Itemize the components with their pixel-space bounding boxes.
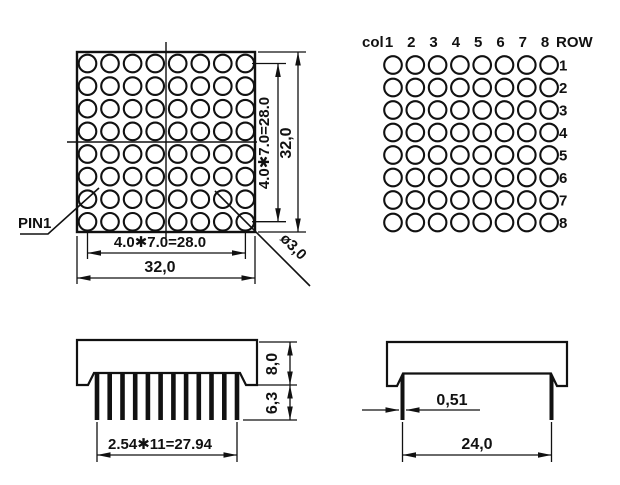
profile-body-outline	[387, 342, 567, 386]
dim-pin-thickness-label: 0,51	[436, 392, 467, 409]
col-number: 3	[429, 34, 437, 51]
led-dot	[384, 79, 402, 97]
led-dot	[237, 145, 255, 163]
col-number: 5	[474, 34, 482, 51]
led-dot	[540, 191, 558, 209]
led-dot	[407, 101, 425, 119]
led-dot	[407, 191, 425, 209]
led-dot	[473, 191, 491, 209]
led-dot	[407, 124, 425, 142]
led-dot	[540, 124, 558, 142]
row-number: 4	[559, 125, 568, 142]
led-dot	[407, 56, 425, 74]
led-dot	[146, 100, 164, 118]
led-dot	[101, 55, 119, 73]
pinout-dot-grid	[384, 56, 558, 231]
dim-pin-row-spacing-label: 24,0	[461, 436, 492, 453]
pin	[171, 373, 176, 420]
led-dot	[192, 145, 210, 163]
led-dot	[496, 146, 514, 164]
side-view-front: 8,0 6,3 2.54✱11=27.94	[77, 340, 297, 462]
led-dot	[540, 169, 558, 187]
led-dot	[496, 56, 514, 74]
drawing-canvas: PIN1 4.0✱7.0=28.0 32,0 4.0✱7.0=28.0 32,0…	[0, 0, 620, 485]
led-dot	[473, 169, 491, 187]
dim-v-overall-label: 32,0	[278, 127, 295, 158]
dim-standoff-label: 6,3	[264, 392, 281, 414]
led-dot	[384, 101, 402, 119]
led-dot	[214, 213, 232, 231]
led-dot	[473, 79, 491, 97]
led-dot	[79, 145, 97, 163]
led-dot	[192, 168, 210, 186]
row-header-label: ROW	[556, 34, 594, 51]
led-dot	[169, 213, 187, 231]
led-dot	[518, 79, 536, 97]
led-dot	[540, 79, 558, 97]
row-number: 2	[559, 80, 567, 97]
col-header-label: col	[362, 34, 384, 51]
led-dot	[518, 101, 536, 119]
pin	[197, 373, 202, 420]
led-dot	[79, 100, 97, 118]
led-dot	[79, 168, 97, 186]
row-number: 5	[559, 148, 567, 165]
pin	[222, 373, 227, 420]
dim-v-pitch-label: 4.0✱7.0=28.0	[256, 97, 273, 189]
led-dot	[429, 79, 447, 97]
dim-h-pitch-label: 4.0✱7.0=28.0	[114, 234, 206, 251]
led-dot	[518, 214, 536, 232]
dim-pin-pitch-label: 2.54✱11=27.94	[108, 436, 213, 453]
led-dot	[169, 168, 187, 186]
led-dot	[237, 168, 255, 186]
led-dot	[540, 146, 558, 164]
led-dot	[101, 168, 119, 186]
col-number: 6	[496, 34, 504, 51]
side-view-profile: 0,51 24,0	[362, 342, 567, 462]
row-number: 7	[559, 193, 567, 210]
led-dot	[473, 146, 491, 164]
pin	[133, 373, 138, 420]
led-dot	[496, 124, 514, 142]
led-dot	[540, 56, 558, 74]
led-dot	[473, 124, 491, 142]
led-dot	[496, 169, 514, 187]
led-dot	[192, 190, 210, 208]
led-dot	[429, 214, 447, 232]
led-dot	[451, 56, 469, 74]
pin1-label: PIN1	[18, 215, 51, 232]
led-dot	[192, 55, 210, 73]
pin	[209, 373, 214, 420]
led-dot	[146, 190, 164, 208]
datasheet-drawing: PIN1 4.0✱7.0=28.0 32,0 4.0✱7.0=28.0 32,0…	[0, 0, 620, 485]
pin	[550, 373, 554, 420]
led-dot	[101, 123, 119, 141]
led-dot	[384, 169, 402, 187]
pin	[120, 373, 125, 420]
led-dot	[384, 146, 402, 164]
led-dot	[496, 214, 514, 232]
led-dot	[429, 124, 447, 142]
led-dot	[101, 145, 119, 163]
led-dot	[101, 100, 119, 118]
led-dot	[101, 190, 119, 208]
led-dot	[451, 214, 469, 232]
led-dot	[146, 77, 164, 95]
led-dot	[407, 169, 425, 187]
dim-body-height-label: 8,0	[264, 353, 281, 375]
led-dot	[124, 100, 142, 118]
pin	[107, 373, 112, 420]
front-view: PIN1 4.0✱7.0=28.0 32,0 4.0✱7.0=28.0 32,0…	[18, 42, 310, 286]
led-dot	[79, 77, 97, 95]
row-number: 8	[559, 215, 567, 232]
led-dot	[407, 146, 425, 164]
led-dot	[101, 77, 119, 95]
led-dot	[124, 190, 142, 208]
led-dot	[214, 123, 232, 141]
led-dot	[192, 123, 210, 141]
led-dot	[214, 55, 232, 73]
led-dot	[384, 56, 402, 74]
led-dot	[451, 169, 469, 187]
col-number: 4	[452, 34, 461, 51]
led-dot	[496, 191, 514, 209]
led-dot	[169, 145, 187, 163]
pinout-view: col ROW 12345678 12345678	[362, 34, 594, 232]
pin	[158, 373, 163, 420]
led-dot	[384, 214, 402, 232]
led-dot	[237, 55, 255, 73]
led-dot	[169, 100, 187, 118]
led-dot	[79, 55, 97, 73]
led-dot	[518, 124, 536, 142]
led-dot	[192, 77, 210, 95]
led-dot	[124, 55, 142, 73]
led-dot	[124, 213, 142, 231]
led-dot	[518, 191, 536, 209]
led-dot	[169, 77, 187, 95]
led-dot	[473, 56, 491, 74]
led-dot	[429, 191, 447, 209]
led-dot	[192, 213, 210, 231]
led-dot	[429, 56, 447, 74]
led-dot	[124, 77, 142, 95]
led-dot	[540, 101, 558, 119]
led-dot	[79, 123, 97, 141]
led-dot	[146, 168, 164, 186]
dim-h-overall-label: 32,0	[144, 259, 175, 276]
led-dot	[237, 190, 255, 208]
led-dot	[451, 146, 469, 164]
led-dot	[101, 213, 119, 231]
led-dot	[407, 214, 425, 232]
led-dot	[518, 169, 536, 187]
led-dot	[146, 145, 164, 163]
row-number: 1	[559, 58, 567, 75]
row-number: 3	[559, 103, 567, 120]
led-dot	[384, 191, 402, 209]
profile-pins	[401, 373, 554, 420]
led-dot	[214, 145, 232, 163]
led-dot	[169, 123, 187, 141]
led-dot	[237, 77, 255, 95]
pin	[146, 373, 151, 420]
led-dot	[146, 123, 164, 141]
led-dot	[429, 146, 447, 164]
led-dot	[124, 145, 142, 163]
led-dot	[214, 77, 232, 95]
col-number: 1	[385, 34, 393, 51]
led-dot	[214, 168, 232, 186]
led-dot	[473, 101, 491, 119]
led-dot	[124, 168, 142, 186]
pin	[95, 373, 100, 420]
led-dot	[540, 214, 558, 232]
led-dot	[146, 213, 164, 231]
col-number: 2	[407, 34, 415, 51]
led-dot	[429, 101, 447, 119]
col-numbers: 12345678	[385, 34, 549, 51]
front-pins	[95, 373, 240, 420]
col-number: 7	[519, 34, 527, 51]
led-dot	[496, 101, 514, 119]
led-dot	[451, 79, 469, 97]
led-dot	[214, 100, 232, 118]
led-dot	[237, 100, 255, 118]
led-dot	[124, 123, 142, 141]
led-dot	[518, 146, 536, 164]
pin	[235, 373, 240, 420]
led-dot	[473, 214, 491, 232]
led-dot	[407, 79, 425, 97]
pin	[184, 373, 189, 420]
led-dot	[451, 191, 469, 209]
led-dot	[237, 123, 255, 141]
led-dot	[518, 56, 536, 74]
led-dot	[429, 169, 447, 187]
led-dot	[496, 79, 514, 97]
led-dot	[451, 124, 469, 142]
col-number: 8	[541, 34, 549, 51]
side-body-outline	[77, 340, 257, 385]
led-dot	[384, 124, 402, 142]
led-dot	[451, 101, 469, 119]
led-dot	[79, 213, 97, 231]
row-number: 6	[559, 170, 567, 187]
led-dot	[146, 55, 164, 73]
row-numbers: 12345678	[559, 58, 568, 233]
pin	[401, 373, 405, 420]
led-dot	[192, 100, 210, 118]
led-dot	[169, 55, 187, 73]
led-dot	[169, 190, 187, 208]
